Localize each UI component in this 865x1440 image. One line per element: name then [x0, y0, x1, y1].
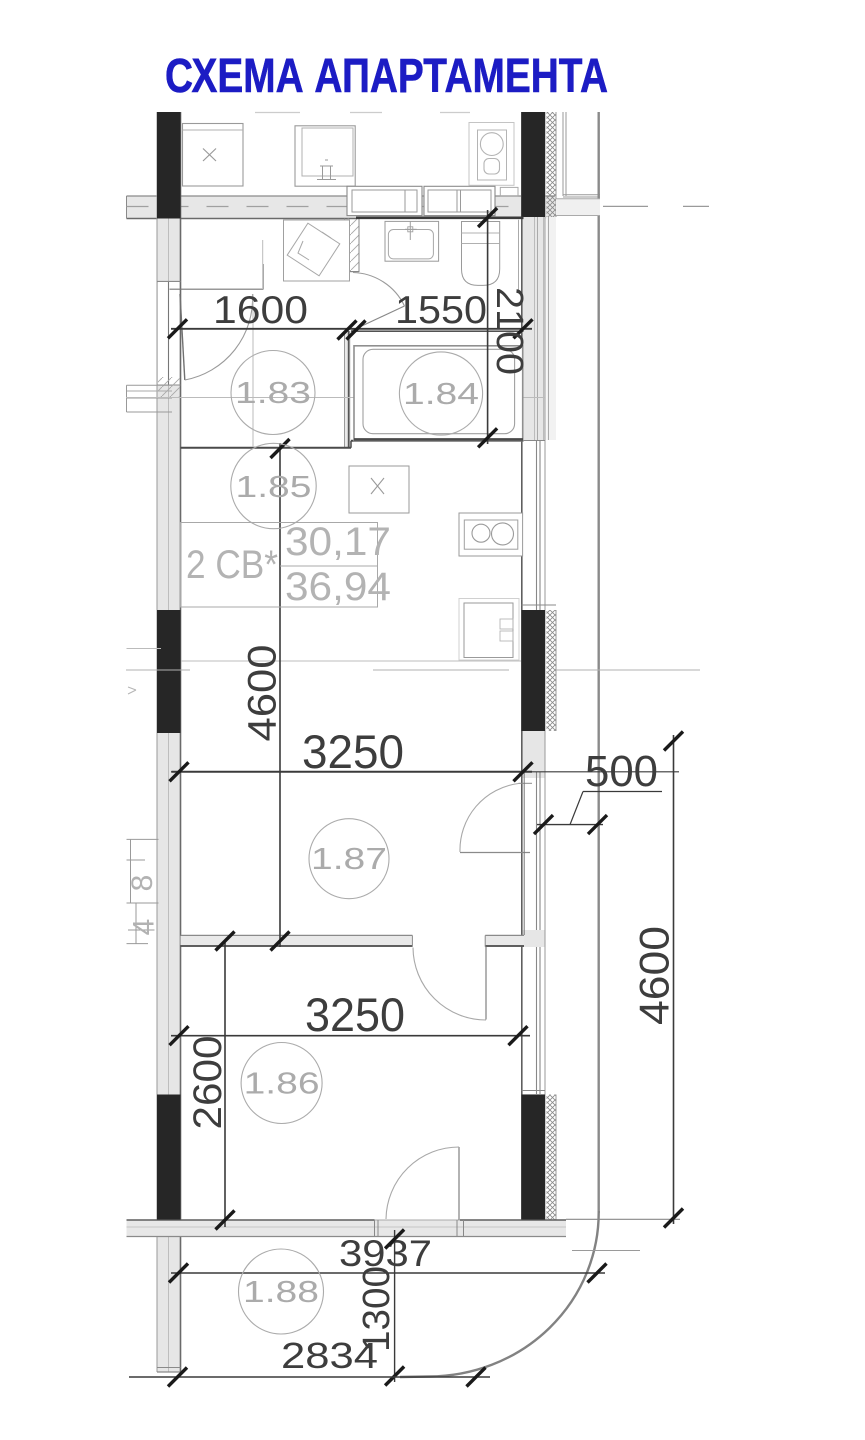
svg-text:4600: 4600: [241, 645, 285, 742]
svg-text:2100: 2100: [488, 287, 530, 375]
svg-text:1.87: 1.87: [311, 841, 387, 876]
svg-text:3250: 3250: [305, 988, 405, 1041]
svg-text:1600: 1600: [213, 289, 308, 332]
svg-text:1.88: 1.88: [243, 1274, 319, 1309]
svg-text:8: 8: [126, 875, 159, 892]
svg-text:1.84: 1.84: [403, 376, 479, 411]
svg-text:СХЕМА АПАРТАМЕНТА: СХЕМА АПАРТАМЕНТА: [165, 50, 608, 103]
svg-text:2834: 2834: [281, 1335, 378, 1376]
svg-text:1.85: 1.85: [236, 469, 312, 504]
svg-text:36,94: 36,94: [285, 565, 391, 609]
svg-text:500: 500: [585, 747, 658, 796]
svg-text:4600: 4600: [631, 926, 678, 1025]
svg-text:3250: 3250: [302, 725, 404, 778]
svg-text:1.86: 1.86: [244, 1066, 320, 1101]
svg-text:4: 4: [128, 919, 161, 936]
svg-text:2 СВ*: 2 СВ*: [186, 543, 278, 587]
svg-text:2600: 2600: [186, 1036, 230, 1130]
svg-text:30,17: 30,17: [285, 520, 391, 564]
svg-text:1.83: 1.83: [235, 375, 311, 410]
svg-text:1550: 1550: [395, 289, 487, 332]
